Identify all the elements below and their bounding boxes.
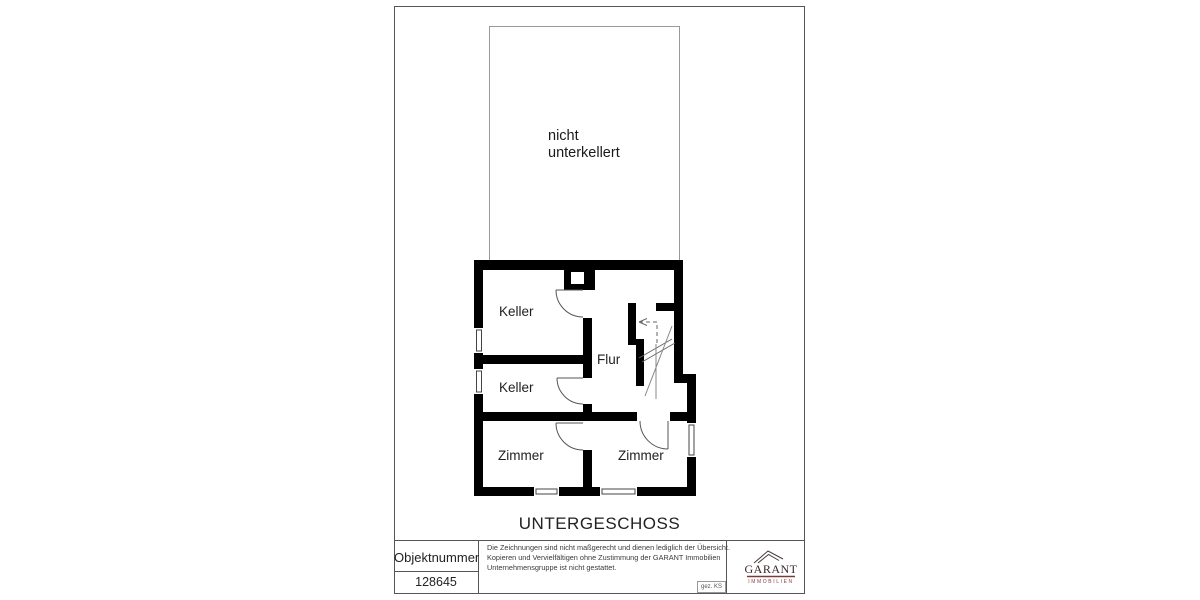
logo-tagline-text: IMMOBILIEN bbox=[742, 579, 800, 585]
disclaimer-line-1: Die Zeichnungen sind nicht maßgerecht un… bbox=[487, 543, 730, 553]
disclaimer-line-3: Unternehmensgruppe ist nicht gestattet. bbox=[487, 563, 730, 573]
room-label-flur: Flur bbox=[597, 352, 620, 367]
object-number-value: 128645 bbox=[394, 575, 478, 589]
room-label-zimmer-right: Zimmer bbox=[618, 448, 664, 463]
staircase-walls bbox=[628, 303, 674, 386]
object-number-label: Objektnummer bbox=[394, 550, 478, 565]
signature-box: gez. KS bbox=[697, 581, 726, 593]
area-label-not-basemented: nicht unterkellert bbox=[548, 128, 648, 161]
floor-title: UNTERGESCHOSS bbox=[394, 514, 805, 534]
floorplan-drawing bbox=[0, 0, 1200, 600]
chimney bbox=[564, 269, 595, 290]
disclaimer-line-2: Kopieren und Vervielfältigen ohne Zustim… bbox=[487, 553, 730, 563]
room-label-zimmer-left: Zimmer bbox=[498, 448, 544, 463]
room-label-keller-2: Keller bbox=[499, 380, 534, 395]
disclaimer-text: Die Zeichnungen sind nicht maßgerecht un… bbox=[487, 543, 730, 573]
logo-brand-text: GARANT bbox=[742, 562, 800, 577]
door-arcs bbox=[556, 290, 668, 450]
room-label-keller-1: Keller bbox=[499, 304, 534, 319]
floorplan-page: nicht unterkellert Keller Keller Flur Zi… bbox=[0, 0, 1200, 600]
staircase-symbol bbox=[639, 319, 675, 400]
